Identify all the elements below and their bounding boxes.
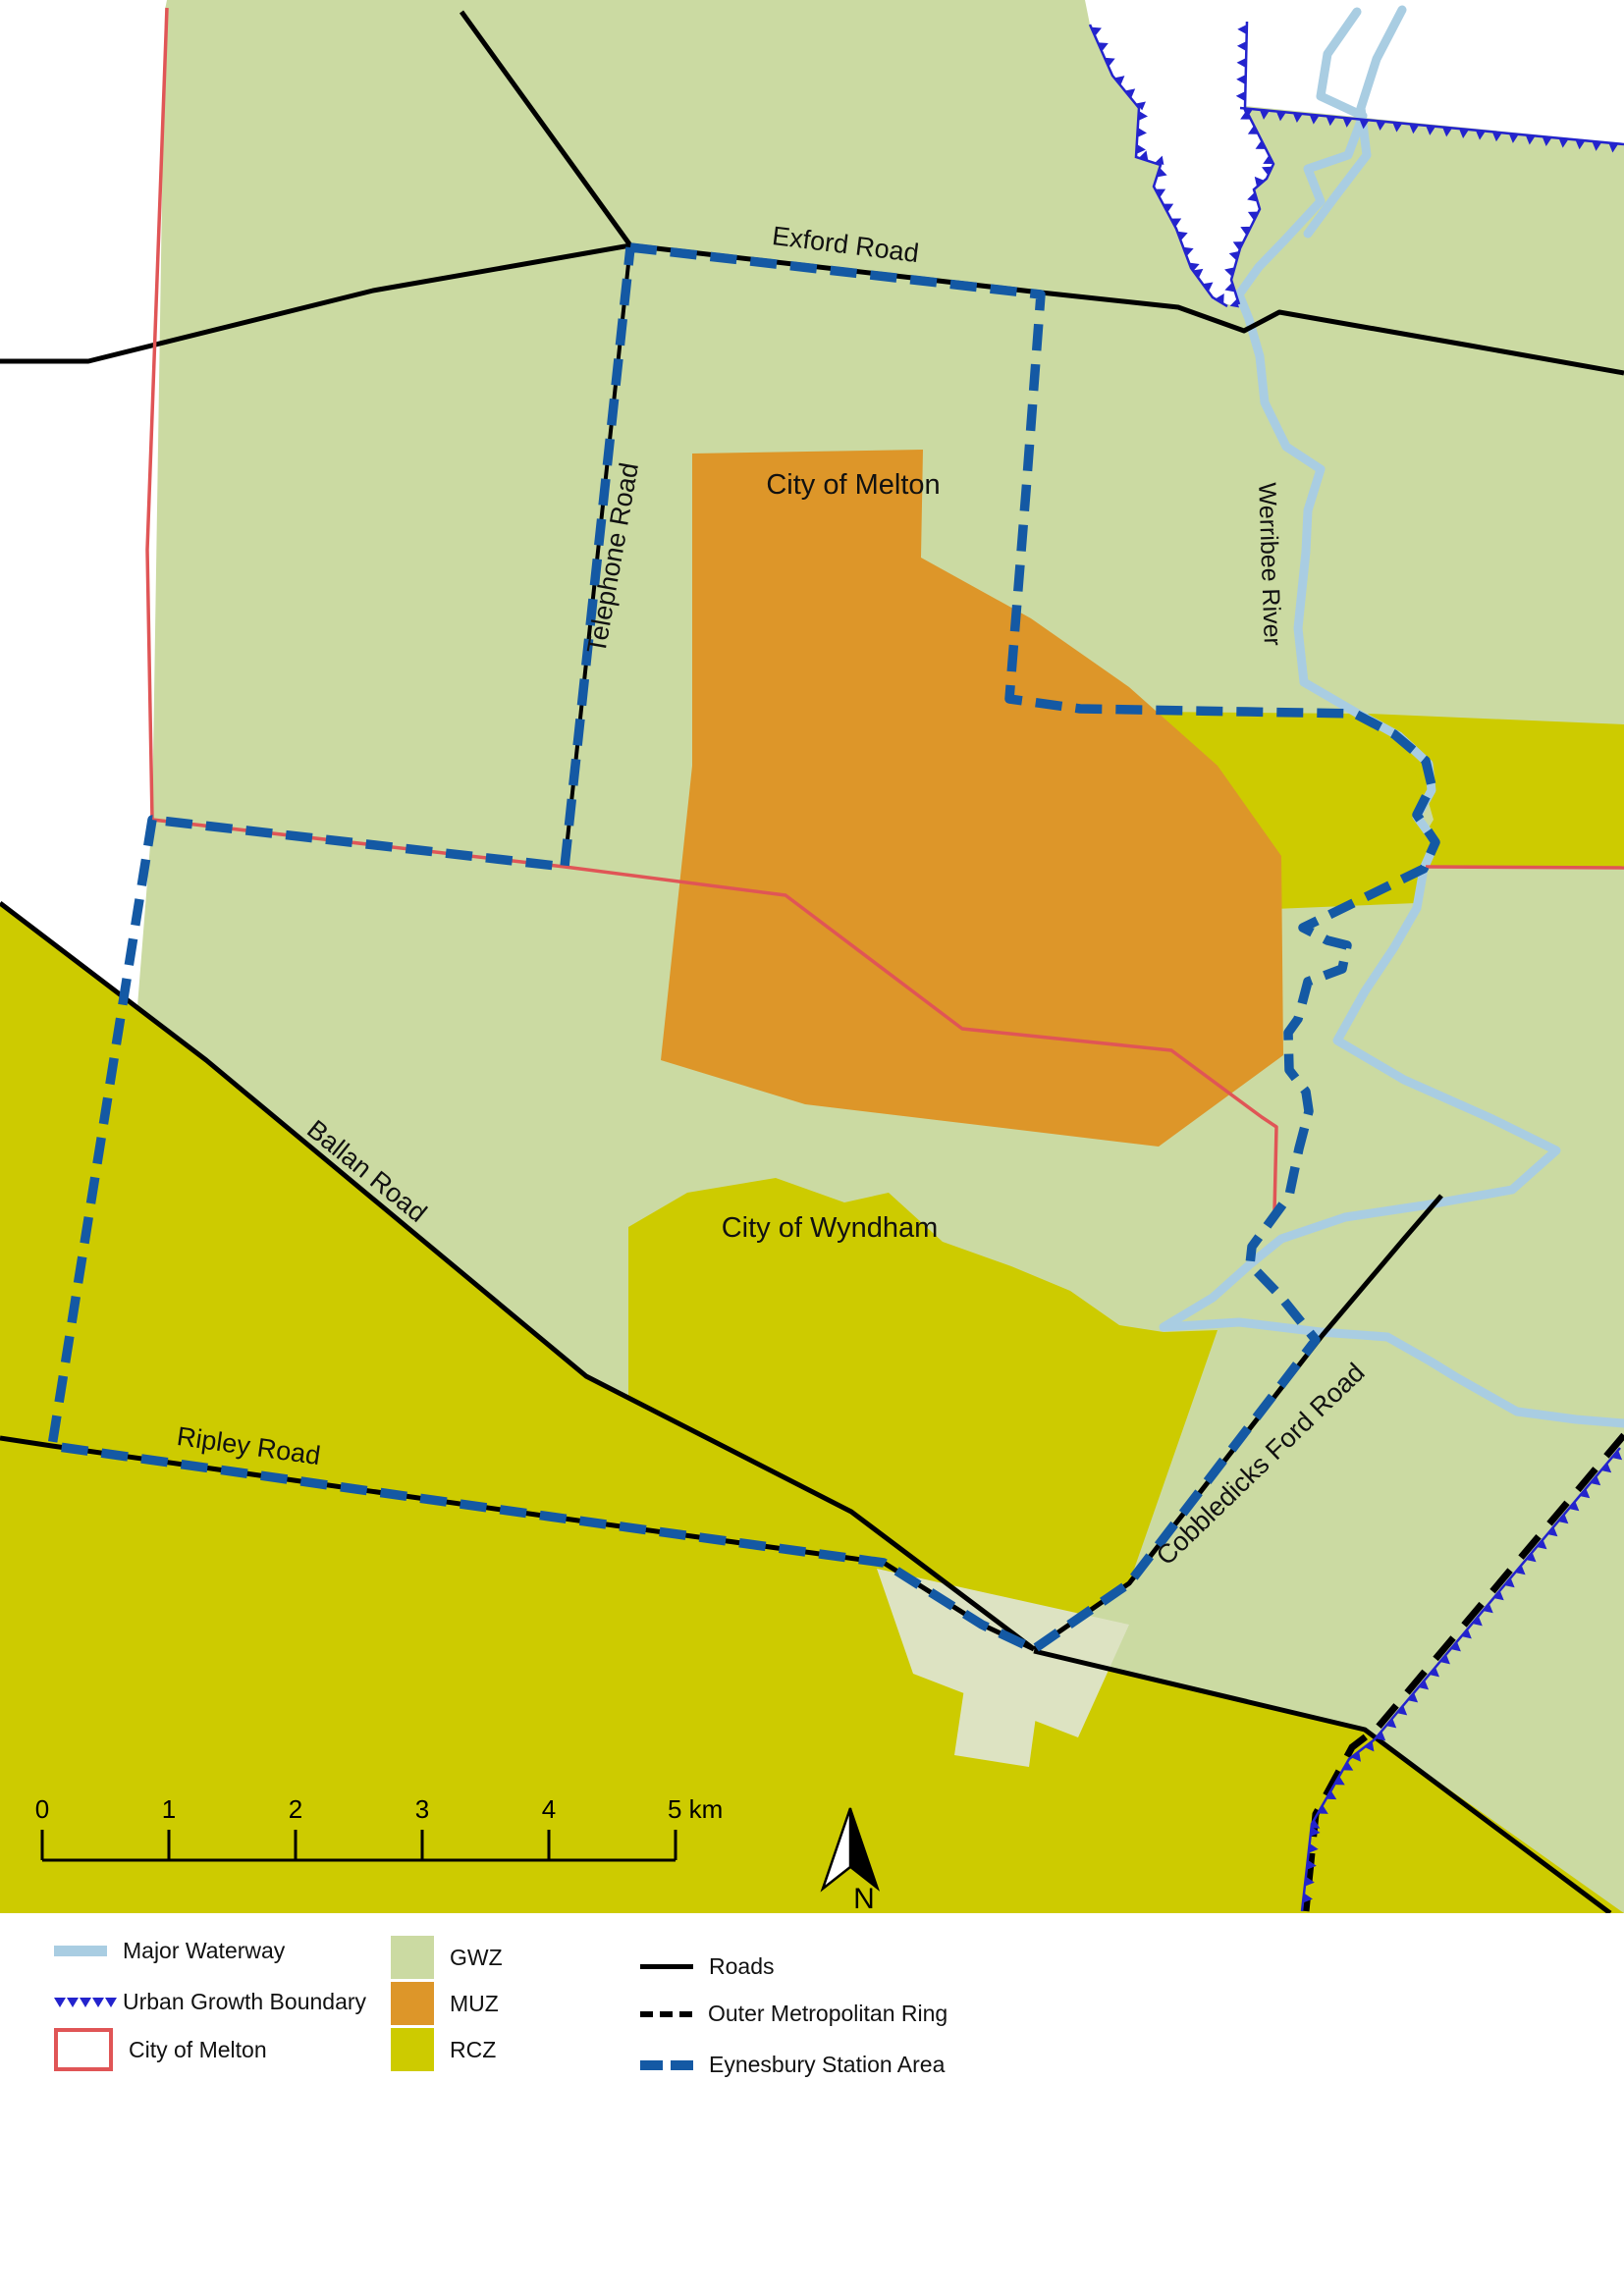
eynesbury-swatch <box>640 2060 693 2070</box>
omr-swatch <box>640 2011 692 2017</box>
legend-item-urban-growth-boundary: Urban Growth Boundary <box>54 1989 366 2015</box>
scalebar-label: 5 km <box>668 1794 723 1824</box>
legend-label: RCZ <box>450 2037 496 2063</box>
legend-item-city-of-melton: City of Melton <box>54 2028 267 2071</box>
muz-swatch <box>391 1982 434 2025</box>
gwz-swatch <box>391 1936 434 1979</box>
legend-item-roads: Roads <box>640 1953 774 1980</box>
legend-item-rcz: RCZ <box>391 2028 496 2071</box>
scalebar-label: 3 <box>415 1794 429 1824</box>
legend-label: Outer Metropolitan Ring <box>708 2001 947 2027</box>
label-city-of-wyndham: City of Wyndham <box>722 1212 939 1244</box>
roads-swatch <box>640 1964 693 1969</box>
rcz-swatch <box>391 2028 434 2071</box>
north-label: N <box>853 1883 875 1913</box>
legend-label: GWZ <box>450 1945 503 1971</box>
zone-pale-2 <box>954 1669 1041 1767</box>
legend-label: Urban Growth Boundary <box>123 1989 366 2015</box>
label-city-of-melton: City of Melton <box>766 469 940 501</box>
ugb-swatch <box>54 1998 107 2007</box>
legend-label: City of Melton <box>129 2037 267 2063</box>
legend-label: Roads <box>709 1953 774 1980</box>
legend-item-eynesbury-station-area: Eynesbury Station Area <box>640 2052 945 2078</box>
legend-item-muz: MUZ <box>391 1982 499 2025</box>
label-werribee-river: Werribee River <box>1253 482 1286 646</box>
planning-map-page: Exford RoadTelephone RoadCity of MeltonW… <box>0 0 1624 2296</box>
legend-item-outer-metropolitan-ring: Outer Metropolitan Ring <box>640 2001 947 2027</box>
legend-label: Major Waterway <box>123 1938 285 1964</box>
map-canvas: Exford RoadTelephone RoadCity of MeltonW… <box>0 0 1624 1913</box>
legend-item-major-waterway: Major Waterway <box>54 1938 285 1964</box>
legend-label: Eynesbury Station Area <box>709 2052 945 2078</box>
white-left-wedge <box>0 0 167 1006</box>
legend-label: MUZ <box>450 1991 499 2017</box>
legend-item-gwz: GWZ <box>391 1936 503 1979</box>
scalebar-label: 0 <box>35 1794 49 1824</box>
waterway-swatch <box>54 1946 107 1956</box>
scalebar-label: 2 <box>289 1794 302 1824</box>
scalebar-label: 1 <box>162 1794 176 1824</box>
melton-boundary-east <box>1426 867 1624 868</box>
melton-boundary-swatch <box>54 2028 113 2071</box>
scalebar-label: 4 <box>542 1794 556 1824</box>
